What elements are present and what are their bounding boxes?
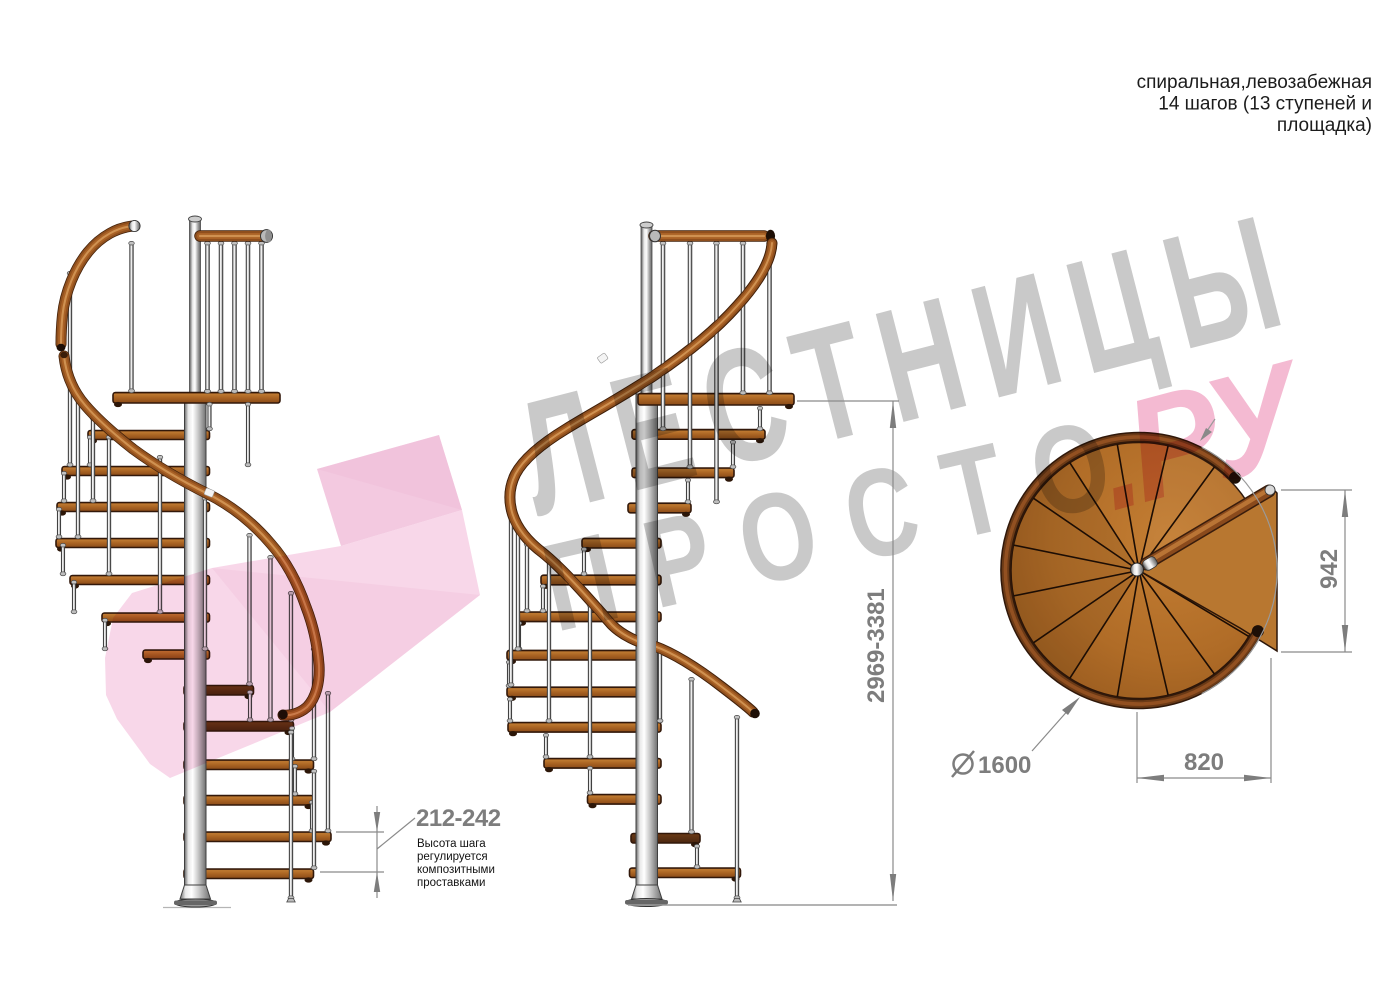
svg-text:820: 820: [1184, 749, 1224, 776]
svg-text:Высота шагарегулируетсякомпози: Высота шагарегулируетсякомпозитнымипрост…: [417, 838, 495, 889]
svg-text:2969-3381: 2969-3381: [863, 588, 890, 703]
svg-text:1600: 1600: [978, 752, 1031, 779]
svg-text:212-242: 212-242: [416, 805, 501, 832]
svg-text:942: 942: [1316, 549, 1343, 589]
